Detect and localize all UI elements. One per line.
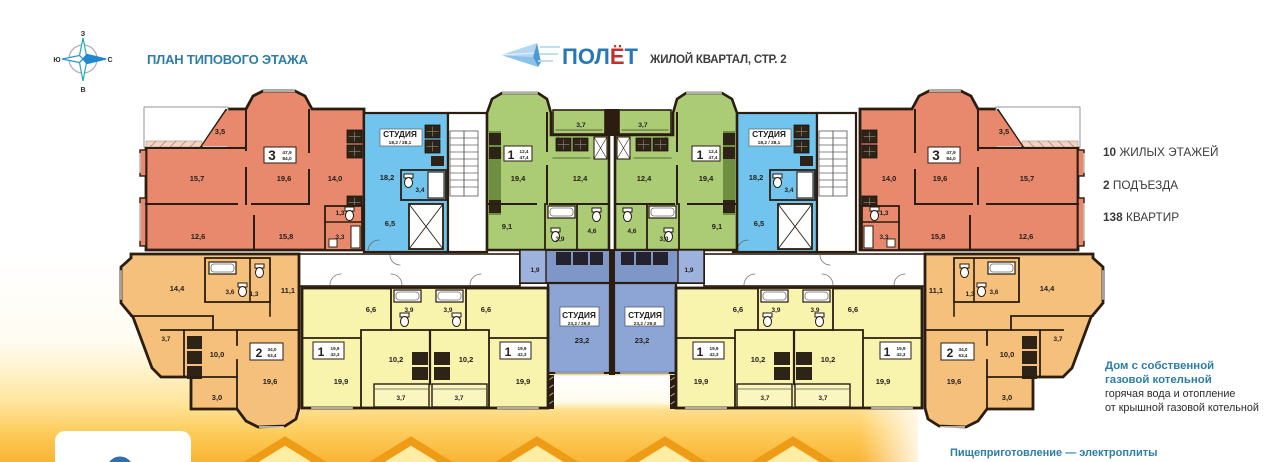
svg-text:84,0: 84,0 <box>946 156 956 162</box>
svg-text:19,6: 19,6 <box>277 174 292 183</box>
svg-text:1,9: 1,9 <box>531 267 540 274</box>
svg-text:12,4: 12,4 <box>709 149 718 154</box>
svg-text:3,7: 3,7 <box>576 122 586 129</box>
svg-text:19,6: 19,6 <box>933 174 948 183</box>
svg-text:СТУДИЯ: СТУДИЯ <box>628 310 662 320</box>
svg-text:19,9: 19,9 <box>710 346 719 351</box>
svg-text:3,5: 3,5 <box>215 127 225 136</box>
svg-text:6,6: 6,6 <box>733 305 743 314</box>
svg-text:1,9: 1,9 <box>685 267 694 274</box>
svg-text:15,8: 15,8 <box>931 232 946 241</box>
svg-text:18,2 / 28,1: 18,2 / 28,1 <box>389 140 412 146</box>
svg-text:14,4: 14,4 <box>170 284 185 293</box>
svg-text:10,0: 10,0 <box>210 350 225 359</box>
svg-text:84,0: 84,0 <box>282 156 292 162</box>
svg-text:4,6: 4,6 <box>588 228 597 235</box>
svg-text:42,3: 42,3 <box>518 352 527 357</box>
svg-text:23,2 / 29,0: 23,2 / 29,0 <box>568 321 591 327</box>
svg-text:1: 1 <box>318 345 325 359</box>
svg-text:1,3: 1,3 <box>966 291 975 298</box>
svg-text:15,7: 15,7 <box>1020 174 1035 183</box>
svg-text:1: 1 <box>505 345 512 359</box>
svg-text:14,0: 14,0 <box>328 174 343 183</box>
svg-text:З: З <box>81 31 86 38</box>
svg-text:47,9: 47,9 <box>282 150 292 156</box>
svg-text:3,9: 3,9 <box>772 307 781 314</box>
svg-text:3,3: 3,3 <box>880 234 889 241</box>
svg-text:11,1: 11,1 <box>281 286 295 295</box>
svg-text:34,0: 34,0 <box>959 347 968 352</box>
svg-text:10,0: 10,0 <box>1000 350 1015 359</box>
svg-text:3,7: 3,7 <box>1054 336 1063 343</box>
svg-text:63,4: 63,4 <box>268 353 277 358</box>
svg-text:12,4: 12,4 <box>520 149 529 154</box>
svg-text:от крышной газовой котельной: от крышной газовой котельной <box>1105 402 1259 414</box>
svg-text:1,3: 1,3 <box>250 291 259 298</box>
svg-text:138 КВАРТИР: 138 КВАРТИР <box>1103 210 1179 224</box>
svg-text:3,4: 3,4 <box>416 187 425 194</box>
svg-text:18,2: 18,2 <box>380 173 395 182</box>
svg-text:горячая вода и отопление: горячая вода и отопление <box>1105 388 1235 400</box>
svg-text:3: 3 <box>932 148 940 163</box>
svg-text:14,4: 14,4 <box>1040 284 1055 293</box>
svg-text:19,9: 19,9 <box>876 377 891 386</box>
svg-text:10,2: 10,2 <box>821 355 836 364</box>
svg-text:19,6: 19,6 <box>947 377 962 386</box>
svg-text:3,7: 3,7 <box>162 336 171 343</box>
svg-text:6,5: 6,5 <box>385 219 395 228</box>
svg-text:19,9: 19,9 <box>897 346 906 351</box>
svg-text:В: В <box>80 87 85 94</box>
svg-text:3,7: 3,7 <box>397 395 406 402</box>
svg-text:1,3: 1,3 <box>880 210 889 217</box>
svg-text:1,3: 1,3 <box>336 210 345 217</box>
svg-text:3: 3 <box>268 148 276 163</box>
svg-text:2: 2 <box>256 346 263 360</box>
svg-text:23,2: 23,2 <box>575 336 590 345</box>
svg-text:19,9: 19,9 <box>516 377 531 386</box>
svg-text:3,6: 3,6 <box>990 289 999 296</box>
svg-text:3,7: 3,7 <box>761 395 770 402</box>
svg-text:3,6: 3,6 <box>226 289 235 296</box>
svg-text:3,7: 3,7 <box>819 395 828 402</box>
svg-text:газовой котельной: газовой котельной <box>1105 374 1212 386</box>
svg-text:12,4: 12,4 <box>573 174 588 183</box>
svg-text:23,2: 23,2 <box>635 336 650 345</box>
svg-text:2 ПОДЪЕЗДА: 2 ПОДЪЕЗДА <box>1103 178 1178 192</box>
svg-text:Ю: Ю <box>53 57 60 64</box>
svg-text:9,1: 9,1 <box>712 222 722 231</box>
svg-text:12,4: 12,4 <box>637 174 652 183</box>
svg-text:18,2 / 28,1: 18,2 / 28,1 <box>758 140 781 146</box>
svg-text:3,0: 3,0 <box>1002 393 1012 402</box>
svg-text:Дом с собственной: Дом с собственной <box>1105 360 1214 372</box>
svg-text:15,7: 15,7 <box>190 174 205 183</box>
svg-text:ЖИЛОЙ КВАРТАЛ, СТР. 2: ЖИЛОЙ КВАРТАЛ, СТР. 2 <box>649 53 787 66</box>
svg-text:6,6: 6,6 <box>848 305 858 314</box>
svg-text:3,9: 3,9 <box>556 236 565 243</box>
svg-text:10 ЖИЛЫХ ЭТАЖЕЙ: 10 ЖИЛЫХ ЭТАЖЕЙ <box>1103 145 1219 159</box>
svg-text:С: С <box>107 57 112 64</box>
svg-text:3,9: 3,9 <box>444 307 453 314</box>
svg-text:10,2: 10,2 <box>459 355 474 364</box>
svg-text:42,3: 42,3 <box>897 352 906 357</box>
svg-text:1: 1 <box>884 345 891 359</box>
svg-text:6,6: 6,6 <box>366 305 376 314</box>
svg-text:9,1: 9,1 <box>502 222 512 231</box>
svg-text:34,0: 34,0 <box>268 347 277 352</box>
svg-text:СТУДИЯ: СТУДИЯ <box>383 129 417 139</box>
svg-text:6,5: 6,5 <box>754 219 764 228</box>
svg-text:1: 1 <box>697 345 704 359</box>
svg-text:4,6: 4,6 <box>628 228 637 235</box>
svg-text:Пищеприготовление — электропли: Пищеприготовление — электроплиты <box>950 447 1158 459</box>
svg-text:3,0: 3,0 <box>212 393 222 402</box>
svg-text:1: 1 <box>697 148 704 162</box>
svg-text:11,1: 11,1 <box>929 286 943 295</box>
svg-text:3,9: 3,9 <box>405 307 414 314</box>
svg-text:19,9: 19,9 <box>331 346 340 351</box>
svg-text:3,3: 3,3 <box>336 234 345 241</box>
svg-text:3,9: 3,9 <box>660 236 669 243</box>
svg-text:6,6: 6,6 <box>481 305 491 314</box>
svg-text:12,6: 12,6 <box>191 232 206 241</box>
svg-text:15,8: 15,8 <box>279 232 294 241</box>
svg-text:18,2: 18,2 <box>749 173 764 182</box>
svg-text:14,0: 14,0 <box>882 174 897 183</box>
svg-text:47,4: 47,4 <box>709 155 718 160</box>
svg-text:47,9: 47,9 <box>946 150 956 156</box>
svg-text:12,6: 12,6 <box>1019 232 1034 241</box>
svg-text:3,7: 3,7 <box>455 395 464 402</box>
svg-text:10,2: 10,2 <box>751 355 766 364</box>
svg-text:3,7: 3,7 <box>638 122 648 129</box>
svg-text:23,2 / 29,0: 23,2 / 29,0 <box>634 321 657 327</box>
svg-text:47,4: 47,4 <box>520 155 529 160</box>
svg-text:19,9: 19,9 <box>694 377 709 386</box>
svg-text:19,9: 19,9 <box>518 346 527 351</box>
svg-text:19,6: 19,6 <box>263 377 278 386</box>
svg-text:63,4: 63,4 <box>959 353 968 358</box>
svg-text:2: 2 <box>947 346 954 360</box>
svg-text:3,9: 3,9 <box>811 307 820 314</box>
svg-text:42,3: 42,3 <box>710 352 719 357</box>
svg-text:ПЛАН ТИПОВОГО ЭТАЖА: ПЛАН ТИПОВОГО ЭТАЖА <box>147 52 309 67</box>
svg-text:1: 1 <box>508 148 515 162</box>
svg-text:19,4: 19,4 <box>699 174 714 183</box>
svg-text:3,5: 3,5 <box>999 127 1009 136</box>
svg-text:СТУДИЯ: СТУДИЯ <box>752 129 786 139</box>
svg-text:10,2: 10,2 <box>389 355 404 364</box>
svg-text:ПОЛЁТ: ПОЛЁТ <box>562 44 639 69</box>
svg-text:19,4: 19,4 <box>511 174 526 183</box>
svg-text:42,3: 42,3 <box>331 352 340 357</box>
svg-text:19,9: 19,9 <box>334 377 349 386</box>
svg-text:3,4: 3,4 <box>785 187 794 194</box>
svg-text:СТУДИЯ: СТУДИЯ <box>562 310 596 320</box>
